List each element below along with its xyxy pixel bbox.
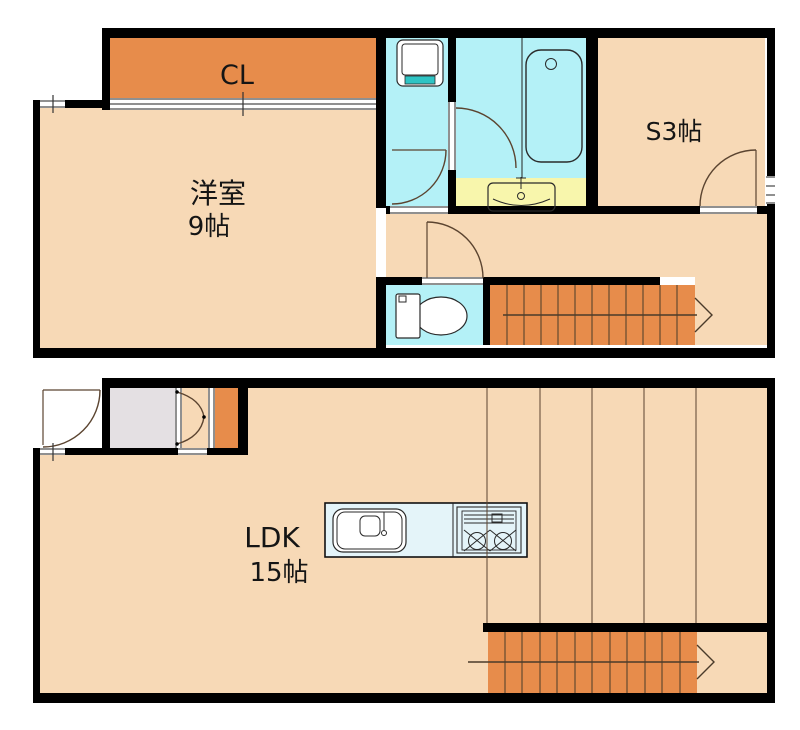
staircase-upper (490, 285, 712, 345)
lower-floor: LDK 15帖 (33, 378, 775, 703)
room-bathroom (456, 38, 586, 178)
entry-opening (178, 448, 207, 455)
label-ldk-size: 15帖 (249, 558, 308, 588)
entry-closet (215, 388, 238, 448)
label-western-size: 9帖 (188, 212, 231, 242)
room-ldk-left (40, 455, 102, 693)
label-ldk: LDK (244, 521, 300, 554)
kitchen-sink (333, 509, 406, 552)
floor-plan-svg: CL 洋室 9帖 S3帖 (0, 0, 800, 730)
entrance-door (43, 390, 100, 447)
label-service-room: S3帖 (646, 117, 703, 146)
toilet (396, 294, 467, 338)
room-hallway (386, 214, 767, 277)
upper-floor: CL 洋室 9帖 S3帖 (33, 28, 775, 358)
entry-genkan (107, 388, 175, 448)
kitchen-counter (325, 503, 527, 557)
washing-machine-pan (397, 40, 443, 86)
floor-plan: CL 洋室 9帖 S3帖 (0, 0, 800, 730)
staircase-lower (468, 632, 714, 693)
window-service-room (766, 176, 775, 204)
room-stair-landing-upper (695, 277, 767, 345)
label-closet: CL (220, 60, 254, 91)
label-western-room: 洋室 (190, 177, 246, 210)
